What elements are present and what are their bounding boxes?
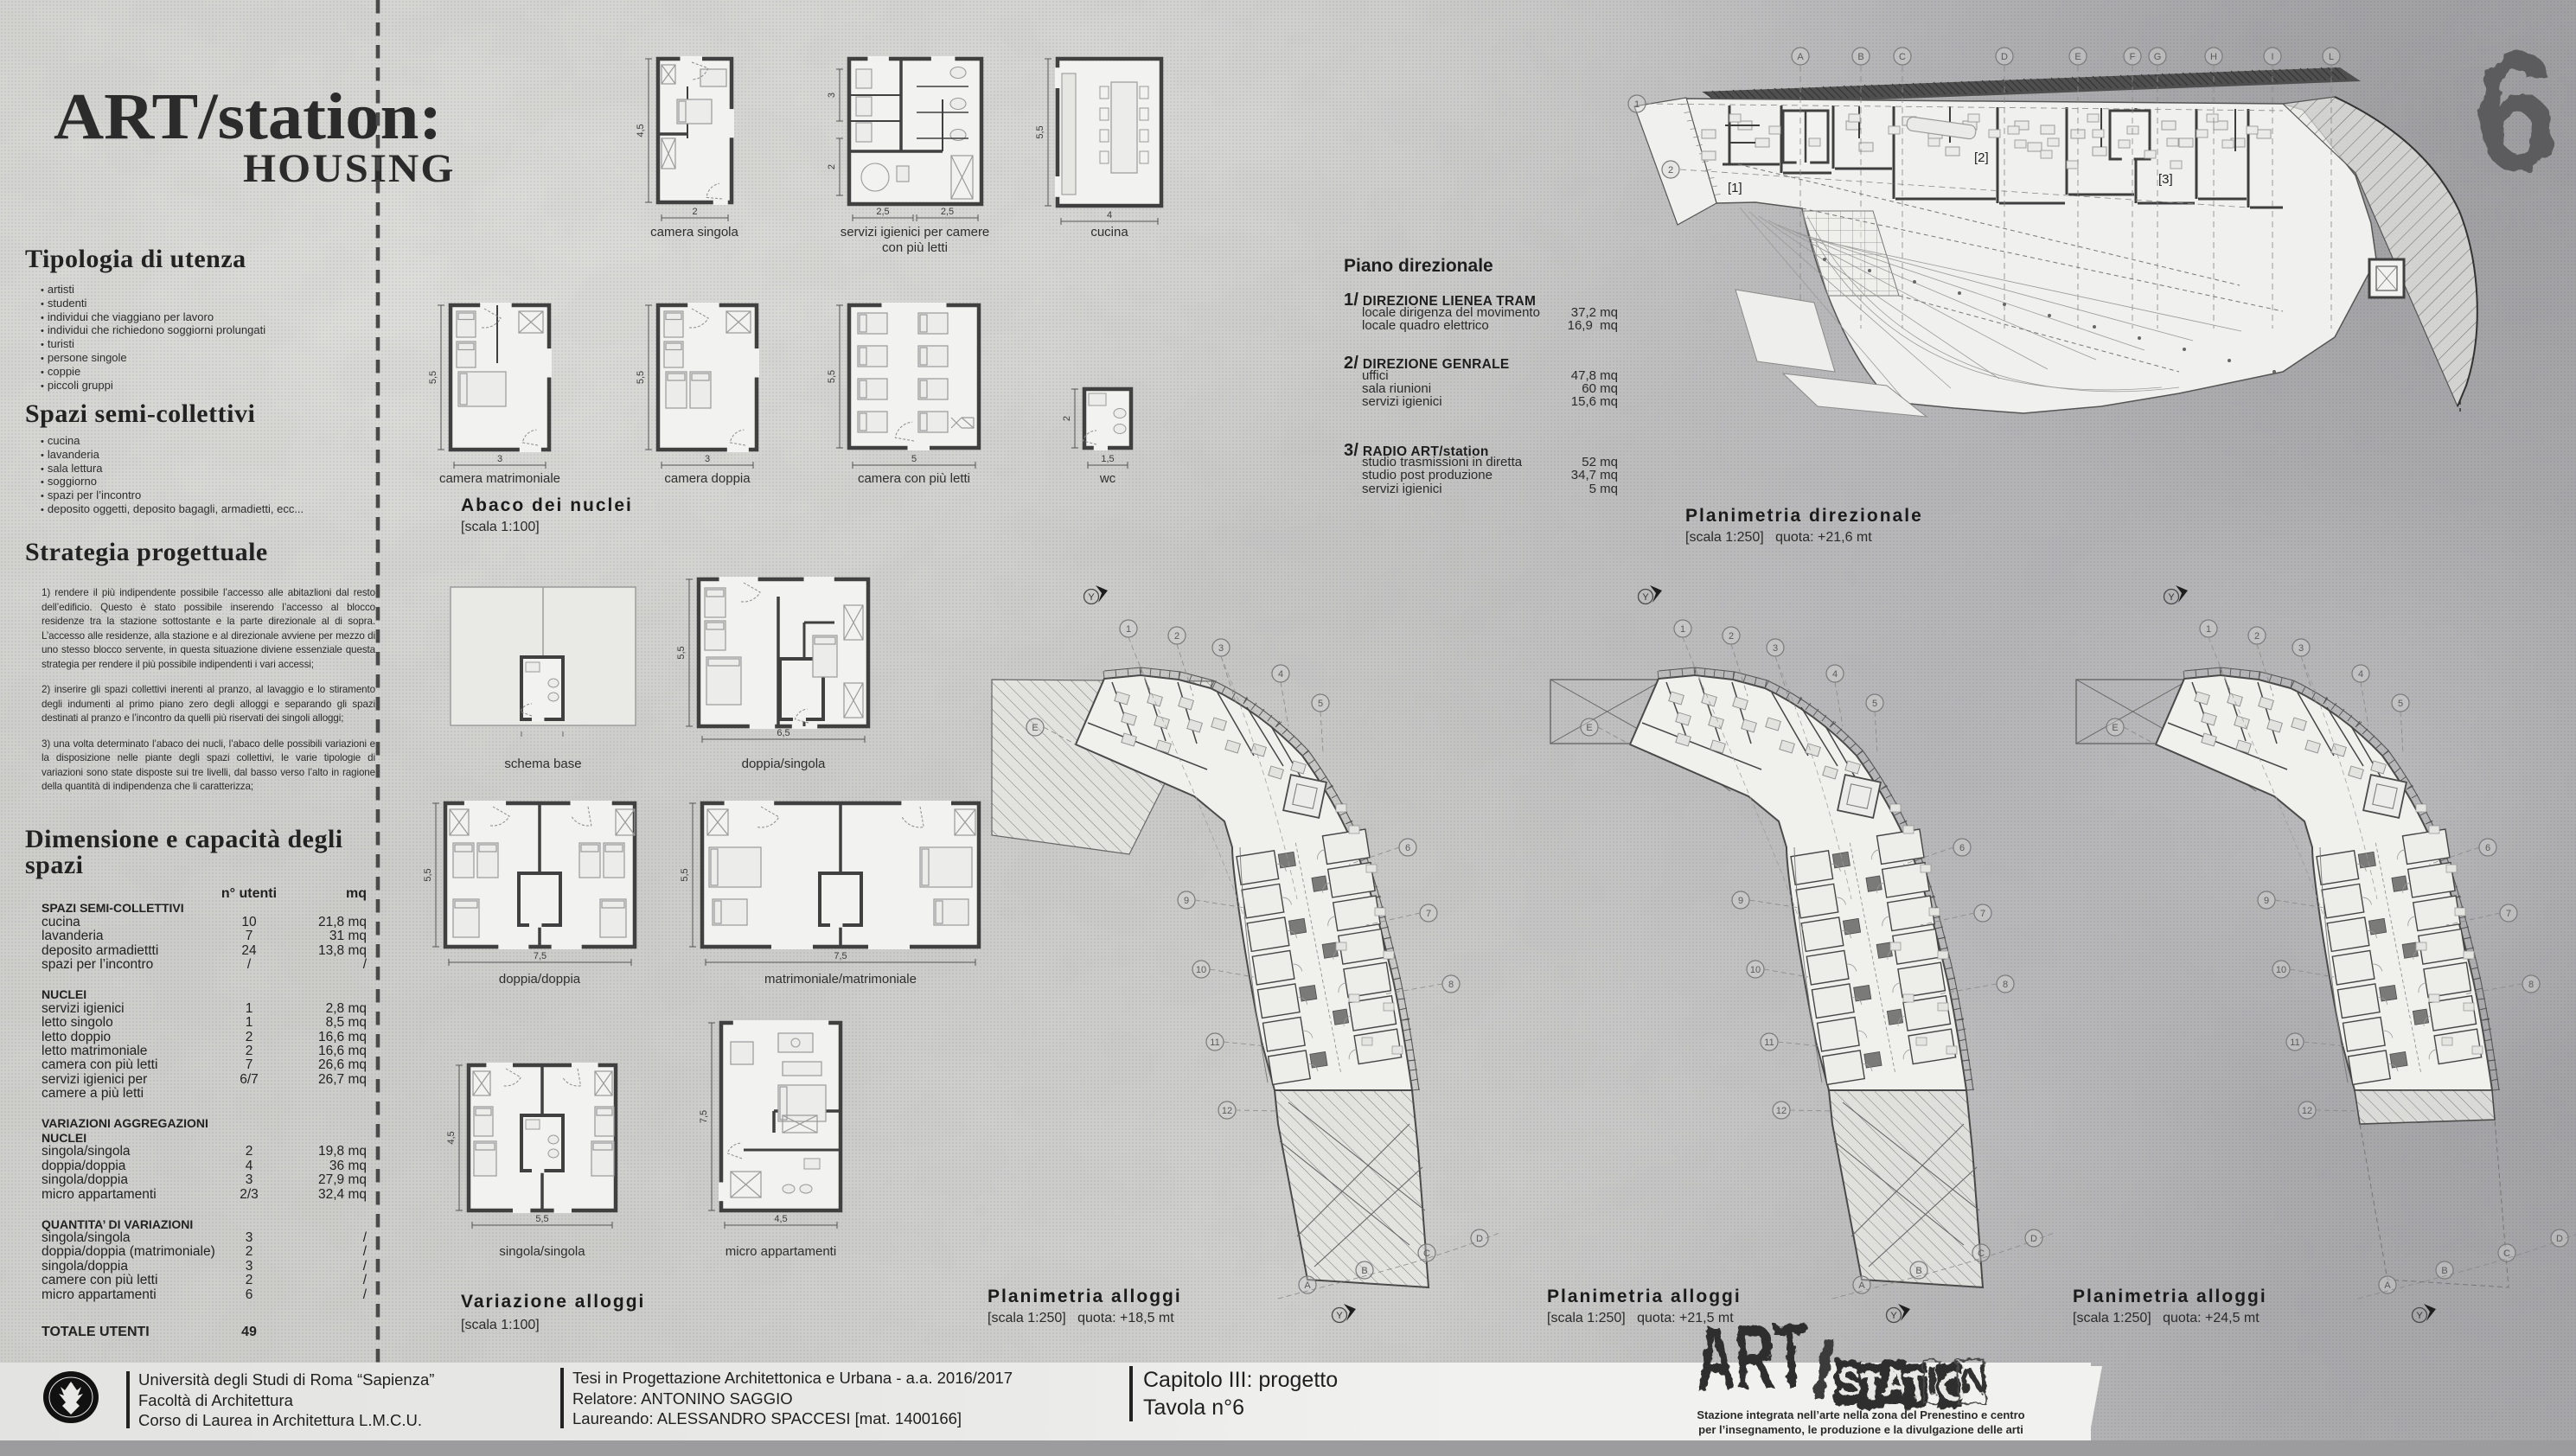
svg-text:4,5: 4,5: [636, 124, 646, 137]
svg-text:Y: Y: [1890, 1311, 1897, 1321]
svg-text:11: 11: [1210, 1038, 1219, 1048]
svg-text:4: 4: [1832, 669, 1838, 680]
svg-text:10: 10: [1750, 965, 1761, 975]
svg-text:doppia/singola: doppia/singola: [742, 757, 826, 771]
svg-text:Y: Y: [1336, 1311, 1343, 1321]
svg-text:G: G: [2154, 52, 2162, 62]
svg-text:5,5: 5,5: [827, 370, 837, 383]
svg-text:8: 8: [2528, 980, 2534, 990]
svg-text:12: 12: [1222, 1106, 1232, 1116]
svg-text:1: 1: [1126, 624, 1131, 635]
svg-text:12: 12: [1776, 1106, 1787, 1116]
svg-text:/: /: [1812, 1325, 1835, 1414]
svg-text:✦: ✦: [68, 1381, 74, 1388]
svg-text:Y: Y: [1642, 592, 1649, 603]
svg-text:5,5: 5,5: [428, 371, 438, 384]
svg-text:2: 2: [1174, 631, 1179, 642]
svg-text:8: 8: [1448, 980, 1454, 990]
svg-text:camera singola: camera singola: [650, 225, 738, 239]
svg-text:2: 2: [692, 207, 697, 217]
svg-text:7,5: 7,5: [534, 951, 547, 961]
svg-text:C: C: [2503, 1248, 2510, 1259]
svg-text:camera matrimoniale: camera matrimoniale: [439, 471, 560, 486]
svg-text:5,5: 5,5: [676, 646, 687, 659]
svg-text:N: N: [1959, 1357, 1990, 1402]
svg-text:H: H: [2210, 52, 2217, 62]
svg-text:E: E: [2112, 723, 2118, 733]
svg-text:Y: Y: [2168, 592, 2175, 603]
svg-text:7,5: 7,5: [699, 1110, 709, 1123]
svg-text:11: 11: [1764, 1038, 1774, 1048]
svg-text:1: 1: [1634, 99, 1640, 110]
svg-text:3: 3: [2298, 643, 2304, 654]
svg-text:2: 2: [1729, 631, 1734, 642]
svg-text:9: 9: [2264, 896, 2269, 906]
svg-text:5: 5: [2398, 699, 2403, 709]
svg-text:10: 10: [1196, 965, 1206, 975]
svg-text:A: A: [2384, 1280, 2391, 1291]
svg-text:ART: ART: [1694, 1306, 1810, 1410]
svg-text:12: 12: [2302, 1106, 2312, 1116]
svg-text:6: 6: [1959, 843, 1965, 853]
svg-text:B: B: [1915, 1266, 1921, 1276]
svg-text:2: 2: [1668, 165, 1673, 176]
svg-text:4,5: 4,5: [774, 1214, 787, 1224]
svg-text:5,5: 5,5: [535, 1214, 548, 1224]
svg-text:C: C: [1978, 1248, 1985, 1259]
svg-text:4: 4: [1107, 210, 1112, 220]
svg-text:2: 2: [1062, 416, 1072, 421]
svg-text:B: B: [1857, 52, 1863, 62]
svg-text:cucina: cucina: [1090, 225, 1128, 239]
svg-text:E: E: [1586, 723, 1592, 733]
svg-text:10: 10: [2276, 965, 2286, 975]
svg-text:C: C: [1899, 52, 1906, 62]
svg-text:1: 1: [2206, 624, 2211, 635]
svg-text:E: E: [2074, 52, 2081, 62]
svg-text:9: 9: [1184, 896, 1189, 906]
svg-text:7: 7: [2506, 909, 2511, 919]
svg-text:6: 6: [1405, 843, 1410, 853]
svg-text:9: 9: [1738, 896, 1743, 906]
svg-text:Y: Y: [2416, 1311, 2423, 1321]
svg-text:F: F: [2130, 52, 2136, 62]
svg-text:8: 8: [2003, 980, 2008, 990]
svg-text:5: 5: [1872, 699, 1877, 709]
svg-text:4,5: 4,5: [446, 1131, 457, 1144]
svg-text:3: 3: [1218, 643, 1224, 654]
svg-text:3: 3: [1773, 643, 1778, 654]
svg-text:E: E: [1032, 723, 1038, 733]
svg-text:4: 4: [1278, 669, 1283, 680]
svg-text:D: D: [1476, 1234, 1483, 1244]
svg-text:1,5: 1,5: [1101, 454, 1114, 464]
svg-text:Y: Y: [1088, 592, 1095, 603]
svg-text:5,5: 5,5: [1035, 125, 1045, 138]
svg-text:7: 7: [1426, 909, 1431, 919]
svg-text:C: C: [1423, 1248, 1430, 1259]
svg-text:wc: wc: [1099, 471, 1116, 486]
svg-text:[2]: [2]: [1974, 150, 1989, 165]
svg-text:6: 6: [2485, 843, 2490, 853]
svg-text:5,5: 5,5: [680, 868, 690, 881]
svg-text:con più letti: con più letti: [882, 240, 948, 255]
svg-text:2,5: 2,5: [876, 207, 889, 217]
svg-text:3: 3: [705, 454, 710, 464]
svg-text:micro appartamenti: micro appartamenti: [725, 1244, 836, 1259]
svg-text:camera doppia: camera doppia: [664, 471, 751, 486]
svg-text:L: L: [2329, 52, 2334, 62]
svg-text:A: A: [1797, 52, 1804, 62]
svg-text:3: 3: [497, 454, 502, 464]
svg-text:camera con più letti: camera con più letti: [858, 471, 970, 486]
svg-text:B: B: [1361, 1266, 1367, 1276]
svg-text:11: 11: [2290, 1038, 2299, 1048]
svg-text:A: A: [1858, 1280, 1865, 1291]
svg-text:servizi igienici per camere: servizi igienici per camere: [841, 225, 990, 239]
svg-text:[1]: [1]: [1728, 181, 1742, 195]
svg-text:5,5: 5,5: [423, 868, 433, 881]
svg-text:5: 5: [911, 454, 917, 464]
svg-text:2: 2: [2254, 631, 2260, 642]
svg-text:D: D: [2030, 1234, 2037, 1244]
svg-text:4: 4: [2358, 669, 2363, 680]
svg-text:[3]: [3]: [2158, 172, 2173, 187]
svg-text:3: 3: [827, 93, 837, 98]
svg-text:schema base: schema base: [504, 757, 581, 771]
svg-text:matrimoniale/matrimoniale: matrimoniale/matrimoniale: [764, 972, 917, 987]
svg-text:6: 6: [2475, 16, 2557, 206]
svg-text:singola/singola: singola/singola: [499, 1244, 585, 1259]
svg-text:2: 2: [827, 164, 837, 169]
svg-text:7: 7: [1980, 909, 1985, 919]
svg-text:6,5: 6,5: [777, 728, 789, 738]
svg-text:A: A: [1304, 1280, 1311, 1291]
svg-text:1: 1: [1680, 624, 1685, 635]
svg-text:5: 5: [1318, 699, 1323, 709]
svg-text:B: B: [2441, 1266, 2447, 1276]
svg-text:5,5: 5,5: [636, 371, 646, 384]
svg-text:2,5: 2,5: [941, 207, 954, 217]
svg-text:doppia/doppia: doppia/doppia: [499, 972, 581, 987]
svg-text:7,5: 7,5: [834, 951, 847, 961]
svg-text:D: D: [2001, 52, 2008, 62]
svg-text:I: I: [2271, 52, 2273, 62]
svg-text:D: D: [2556, 1234, 2563, 1244]
